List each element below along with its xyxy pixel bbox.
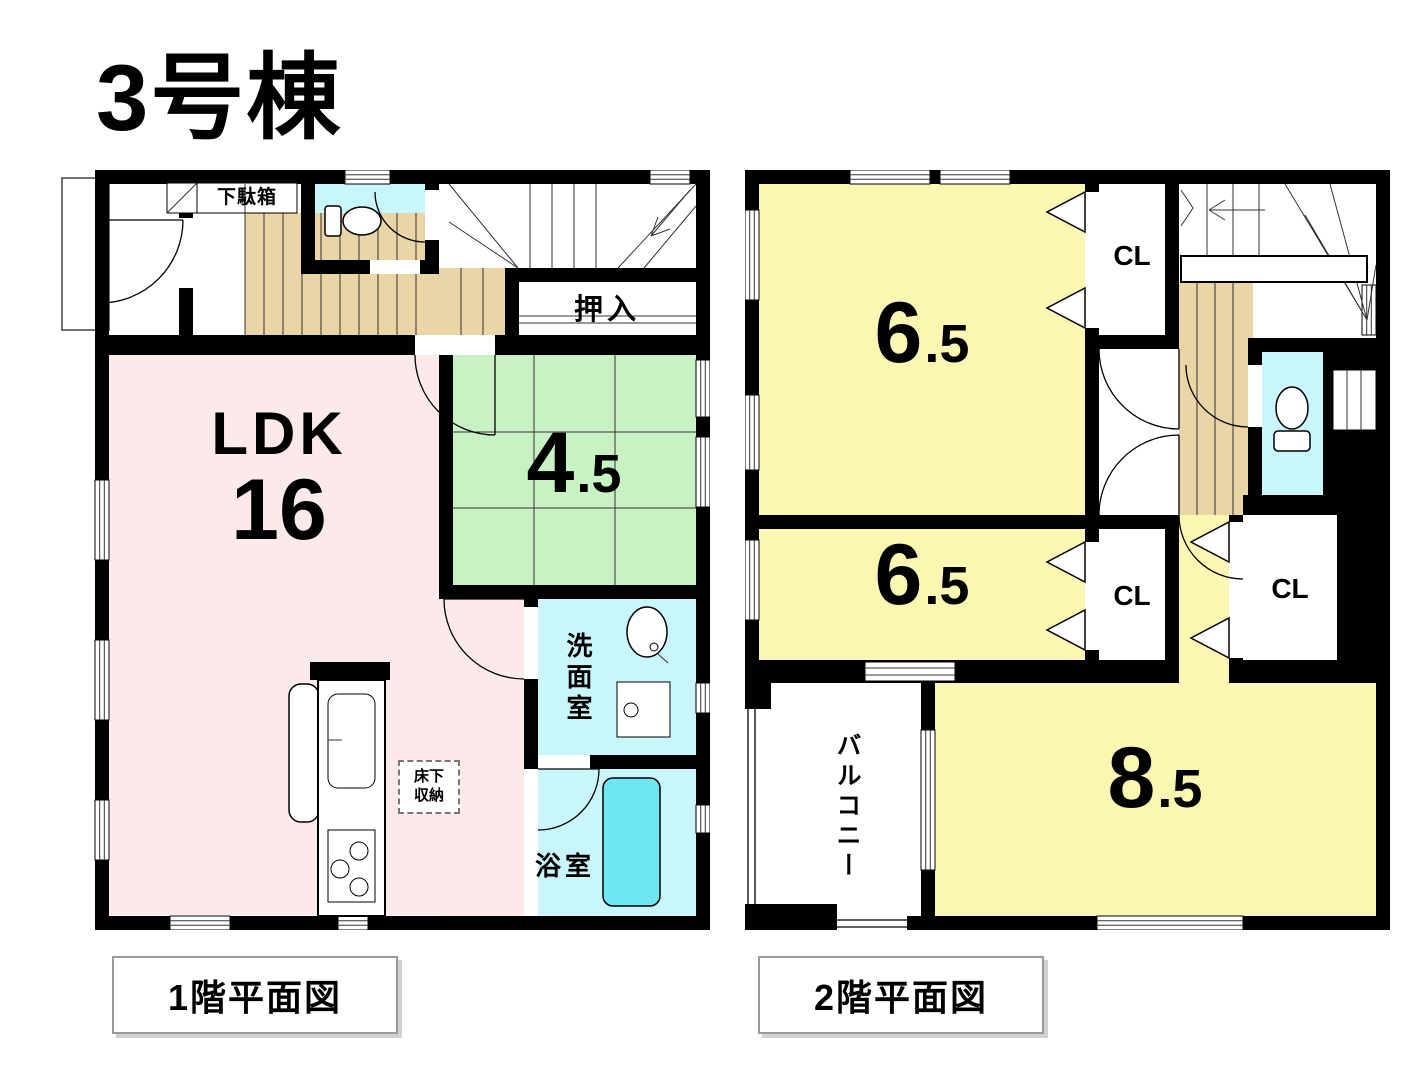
bedroom2-size-main: 6 xyxy=(875,532,923,618)
bedroom2-size-dec: .5 xyxy=(924,559,969,613)
closet1-label: CL xyxy=(1091,242,1173,270)
closet3-label: CL xyxy=(1241,575,1339,603)
closet2-label: CL xyxy=(1091,582,1173,610)
underfloor-storage-label: 床下 収納 xyxy=(398,760,460,814)
ldk-size: 16 xyxy=(231,465,327,555)
page-title: 3号棟 xyxy=(96,22,342,158)
stair-landing-floor xyxy=(439,268,505,335)
floor1-caption: 1階平面図 xyxy=(112,956,398,1034)
washroom-label: 洗面室 xyxy=(559,608,597,748)
toilet2-icon xyxy=(1274,387,1310,451)
floor1-plan: 下駄箱 押入 LDK 16 4.5 洗面室 浴室 床下 収納 xyxy=(55,170,710,930)
ldk-label: LDK 16 xyxy=(149,402,409,555)
floor2-plan: 6.5 CL 6.5 CL CL 8.5 バルコニー xyxy=(745,170,1390,930)
bedroom1-size-label: 6.5 xyxy=(792,290,1052,376)
ldk-name: LDK xyxy=(211,402,346,465)
bedroom1-size-dec: .5 xyxy=(924,317,969,371)
floorplan-page: 3号棟 xyxy=(0,0,1409,1069)
balcony-label: バルコニー xyxy=(817,712,865,902)
bedroom1-size-main: 6 xyxy=(875,290,923,376)
bedroom3-size-main: 8 xyxy=(1108,735,1156,821)
floor2-caption: 2階平面図 xyxy=(758,956,1044,1034)
hall-floor xyxy=(1179,282,1253,515)
oshiire-label: 押入 xyxy=(519,286,695,334)
bedroom2-size-label: 6.5 xyxy=(792,532,1052,618)
bedroom3-size-label: 8.5 xyxy=(1025,735,1285,821)
getabako-label: 下駄箱 xyxy=(197,185,297,211)
stairs-landing xyxy=(1181,256,1367,282)
ldk-kitchen-area xyxy=(439,599,524,916)
underfloor-storage-line1: 床下 xyxy=(414,768,444,787)
underfloor-storage-line2: 収納 xyxy=(414,787,444,806)
kitchen-sink xyxy=(328,694,375,788)
toilet-icon xyxy=(325,206,381,236)
bedroom3-size-dec: .5 xyxy=(1157,762,1202,816)
tatami-size-main: 4 xyxy=(527,420,575,506)
floor2-caption-text: 2階平面図 xyxy=(814,969,988,1021)
bathtub-icon xyxy=(603,778,660,906)
tatami-size-label: 4.5 xyxy=(454,420,694,506)
tatami-size-dec: .5 xyxy=(576,447,621,501)
bathroom-label: 浴室 xyxy=(525,846,605,883)
floor1-caption-text: 1階平面図 xyxy=(168,969,342,1021)
